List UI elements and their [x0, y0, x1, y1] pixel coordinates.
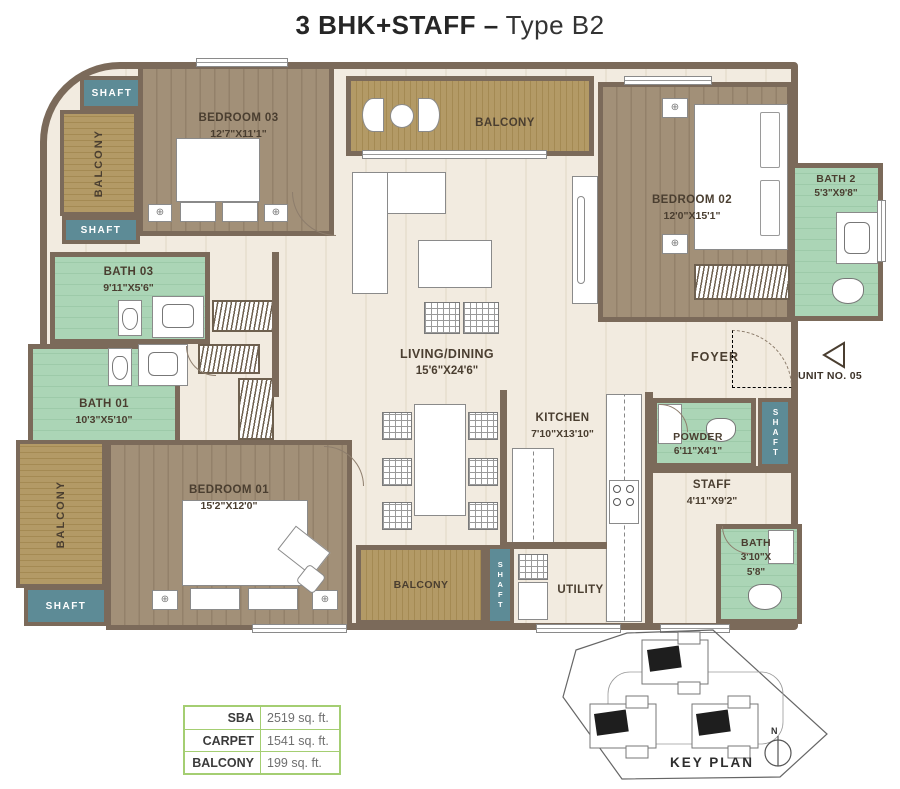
area-table: SBA 2519 sq. ft. CARPET 1541 sq. ft. BAL… — [183, 705, 341, 775]
sliding-door — [362, 150, 547, 159]
key-plan-label: KEY PLAN — [670, 755, 754, 770]
label-balcony-top: BALCONY — [445, 115, 565, 132]
highlighted-unit — [696, 710, 731, 736]
highlighted-unit — [594, 710, 629, 736]
coffee-table — [418, 240, 492, 288]
lamp-icon: ⊕ — [671, 103, 679, 113]
shaft-left-2: SHAFT — [62, 216, 140, 244]
shaft-label: SHAFT — [81, 225, 122, 236]
dining-table — [414, 404, 466, 516]
wardrobe — [238, 378, 274, 440]
wall-segment — [272, 252, 279, 397]
lamp-icon: ⊕ — [161, 595, 169, 605]
north-label: N — [771, 726, 778, 736]
lamp-icon: ⊕ — [156, 208, 164, 218]
label-bath-01: BATH 01 10'3"X5'10" — [34, 396, 174, 428]
balcony-bottom: BALCONY — [356, 545, 486, 625]
balcony-label: BALCONY — [93, 129, 105, 197]
shaft-label: SHAFT — [46, 601, 87, 612]
page-title: 3 BHK+STAFF –Type B2 — [0, 10, 900, 41]
shaft-bottom: SHAFT — [486, 545, 514, 625]
highlighted-unit — [647, 646, 682, 672]
area-value: 2519 sq. ft. — [261, 711, 339, 725]
title-regular: Type B2 — [506, 10, 605, 40]
nightstand: ⊕ — [662, 234, 688, 254]
ottoman — [463, 302, 499, 334]
tv — [577, 196, 585, 284]
dining-chair — [382, 412, 412, 440]
entry-arrow-icon — [818, 340, 848, 370]
label-living-dining: LIVING/DINING 15'6"X24'6" — [358, 345, 536, 380]
bed-bedroom03 — [176, 138, 260, 202]
wall-segment — [507, 542, 607, 549]
bath03-toilet — [122, 308, 138, 330]
area-value: 199 sq. ft. — [261, 756, 339, 770]
area-label: CARPET — [185, 730, 261, 751]
table-row: CARPET 1541 sq. ft. — [185, 729, 339, 751]
bed-footboard — [190, 588, 240, 610]
label-bedroom-01: BEDROOM 01 15'2"X12'0" — [134, 482, 324, 514]
bed-footboard — [180, 202, 216, 222]
label-staff: STAFF 4'11"X9'2" — [652, 477, 772, 509]
window — [877, 200, 886, 262]
window — [252, 624, 347, 633]
washer — [518, 554, 548, 580]
table-row: BALCONY 199 sq. ft. — [185, 751, 339, 773]
title-bold: 3 BHK+STAFF – — [295, 10, 498, 40]
shaft-label: SHAFT — [771, 408, 779, 458]
balcony-left-bottom: BALCONY — [16, 440, 106, 588]
balcony-chair — [362, 98, 384, 132]
bath01-toilet — [112, 356, 128, 380]
dining-chair — [382, 458, 412, 486]
bath2-basin — [844, 222, 870, 254]
wardrobe — [212, 300, 274, 332]
lamp-icon: ⊕ — [321, 595, 329, 605]
shaft-label: SHAFT — [92, 88, 133, 99]
pillow — [760, 112, 780, 168]
window — [624, 76, 712, 85]
unit-number-label: UNIT NO. 05 — [798, 370, 888, 382]
shaft-top-left: SHAFT — [80, 76, 144, 110]
bed-footboard — [222, 202, 258, 222]
shaft-label: SHAFT — [496, 560, 504, 610]
label-bedroom-03: BEDROOM 03 12'7"X11'1" — [146, 110, 331, 142]
nightstand: ⊕ — [312, 590, 338, 610]
dining-chair — [382, 502, 412, 530]
bath03-basin — [162, 304, 194, 328]
lamp-icon: ⊕ — [272, 208, 280, 218]
tv-unit — [572, 176, 598, 304]
ottoman — [424, 302, 460, 334]
shaft-bottom-left: SHAFT — [24, 586, 108, 626]
burner-icon — [613, 485, 621, 493]
balcony-chair — [418, 98, 440, 132]
window — [196, 58, 288, 67]
burner-icon — [613, 498, 621, 506]
nightstand: ⊕ — [662, 98, 688, 118]
label-bath-2: BATH 2 5'3"X9'8" — [792, 172, 880, 202]
label-bath-03: BATH 03 9'11"X5'6" — [56, 264, 201, 296]
table-row: SBA 2519 sq. ft. — [185, 707, 339, 729]
utility-sink — [518, 582, 548, 620]
wall-segment — [652, 466, 792, 473]
balcony-table — [390, 104, 414, 128]
area-label: BALCONY — [185, 752, 261, 773]
shaft-powder: SHAFT — [758, 398, 792, 468]
dining-chair — [468, 502, 498, 530]
area-value: 1541 sq. ft. — [261, 734, 339, 748]
dining-chair — [468, 458, 498, 486]
nightstand: ⊕ — [148, 204, 172, 222]
nightstand: ⊕ — [152, 590, 178, 610]
key-plan: KEY PLAN N — [550, 622, 895, 784]
bath2-toilet — [832, 278, 864, 304]
balcony-label: BALCONY — [55, 480, 67, 548]
nightstand: ⊕ — [264, 204, 288, 222]
balcony-left-top: BALCONY — [60, 110, 138, 216]
sofa-side — [352, 172, 388, 294]
burner-icon — [626, 498, 634, 506]
kitchen-island — [512, 448, 554, 546]
lamp-icon: ⊕ — [671, 239, 679, 249]
bed-footboard — [248, 588, 298, 610]
area-label: SBA — [185, 707, 261, 729]
burner-icon — [626, 485, 634, 493]
balcony-label: BALCONY — [394, 579, 449, 591]
bath01-basin — [148, 352, 178, 376]
staffbath-toilet — [748, 584, 782, 610]
wardrobe — [694, 264, 790, 300]
label-bedroom-02: BEDROOM 02 12'0"X15'1" — [602, 192, 782, 224]
label-powder: POWDER 6'11"X4'1" — [648, 430, 748, 460]
